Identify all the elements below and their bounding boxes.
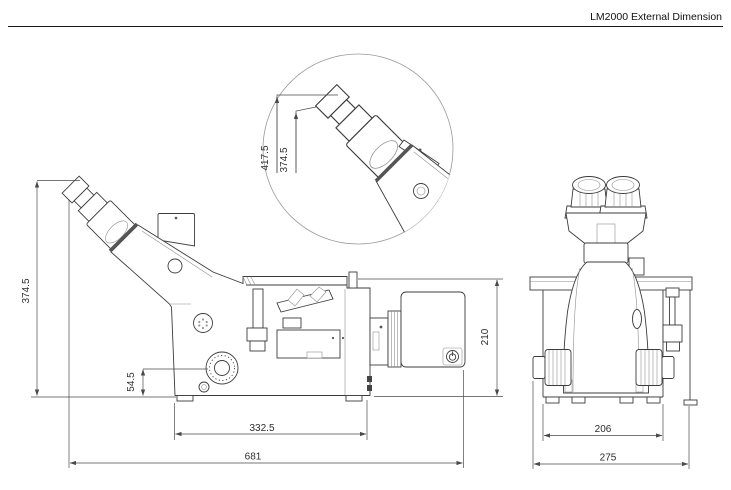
dim-label: 374.5 [21, 278, 32, 303]
focus-knob-dial [206, 352, 238, 384]
technical-drawing: 417.5 374.5 [0, 0, 731, 490]
power-switch[interactable] [443, 348, 462, 365]
dim-label: 54.5 [126, 372, 137, 392]
dim-label: 374.5 [279, 147, 290, 172]
dim-label: 275 [600, 453, 617, 464]
right-eyepiece [599, 177, 647, 219]
dim-front-base-width: 206 [543, 404, 663, 441]
dim-label: 332.5 [249, 423, 274, 434]
right-focus-knob[interactable] [636, 350, 674, 386]
detail-view: 417.5 374.5 [260, 54, 500, 260]
dim-base-length: 332.5 [175, 400, 368, 440]
dim-label: 681 [245, 452, 262, 463]
illumination-column [663, 288, 682, 351]
stage-control-knob [247, 328, 267, 341]
left-focus-knob[interactable] [533, 350, 571, 386]
drawing-page: LM2000 External Dimension [0, 0, 731, 490]
stage-clip-tab [349, 272, 357, 288]
arm-hole [168, 259, 182, 273]
side-body [111, 225, 370, 396]
filter-port [194, 314, 213, 333]
front-view [530, 177, 697, 406]
dim-label: 417.5 [260, 145, 271, 170]
dim-label: 210 [480, 328, 491, 345]
dim-label: 206 [595, 424, 612, 435]
side-button[interactable] [633, 310, 642, 329]
